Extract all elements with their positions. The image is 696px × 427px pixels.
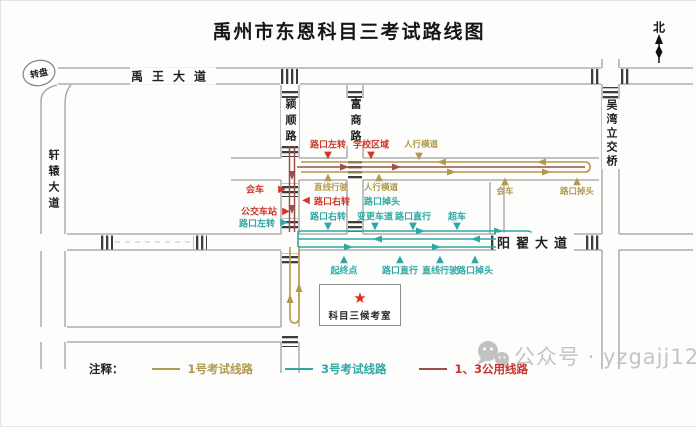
arrow-down-icon	[324, 222, 332, 232]
arrow-up-icon	[396, 255, 404, 265]
arrow-right-icon	[280, 218, 288, 228]
legend-line-shared	[419, 368, 447, 371]
red-label-turn-left: 路口左转	[310, 138, 346, 151]
north-label: 北	[653, 19, 665, 36]
legend-label-route3: 3号考试线路	[321, 361, 387, 377]
star-icon	[353, 288, 366, 307]
legend: 注释： 1号考试线路 3号考试线路 1、3公用线路	[89, 360, 560, 378]
arrow-up-icon	[471, 255, 479, 265]
exam-room-box: 科目三候考室	[319, 284, 401, 326]
legend-label-route1: 1号考试线路	[188, 361, 254, 377]
teal-label-start-end-point: 起终点	[330, 264, 357, 277]
arrow-down-icon	[453, 222, 461, 232]
arrow-up-icon	[436, 255, 444, 265]
route-map-canvas: 禹州市东恩科目三考试路线图 北 转盘 禹王大道 轩辕大道 颍顺路 富商路 阳翟大…	[0, 0, 696, 427]
olive-label-crosswalk-top: 人行横道	[404, 138, 438, 150]
arrow-up-icon	[340, 255, 348, 265]
arrow-down-icon	[371, 222, 379, 232]
road-label-yangzhai: 阳翟大道	[496, 233, 574, 252]
arrow-right-icon	[282, 207, 290, 217]
red-label-turn-right: 路口右转	[314, 195, 350, 208]
teal-label-turn-left: 路口左转	[239, 217, 275, 230]
legend-line-route3	[285, 368, 313, 371]
teal-label-go-straight-bottom: 路口直行	[382, 264, 418, 277]
road-label-yuwang: 禹王大道	[130, 68, 216, 85]
arrow-right-icon	[278, 185, 286, 195]
road-label-xuanyuan: 轩辕大道	[44, 149, 62, 213]
arrow-left-icon	[302, 196, 310, 206]
arrow-up-icon	[375, 173, 383, 183]
teal-label-straight-drive: 直线行驶	[422, 264, 458, 277]
teal-label-u-turn-bottom: 路口掉头	[457, 264, 493, 277]
page-title: 禹州市东恩科目三考试路线图	[1, 17, 696, 44]
road-label-yingshun: 颍顺路	[281, 98, 299, 146]
red-label-school-zone: 学校区域	[353, 138, 389, 151]
arrow-down-icon	[367, 151, 375, 161]
teal-label-u-turn-mid: 路口掉头	[364, 195, 400, 208]
arrow-down-icon	[415, 152, 423, 162]
arrow-up-icon	[324, 173, 332, 183]
legend-line-route1	[152, 368, 180, 371]
arrow-up-icon	[573, 177, 581, 187]
arrow-down-icon	[324, 151, 332, 161]
red-label-meet-vehicle: 会车	[246, 183, 264, 196]
arrow-up-icon	[501, 177, 509, 187]
arrow-down-icon	[409, 222, 417, 232]
exam-room-label: 科目三候考室	[328, 308, 391, 322]
watermark-text: 公众号 · yzgajj122	[514, 341, 696, 371]
legend-prefix: 注释：	[89, 361, 124, 377]
road-label-wuwan: 吴湾立交桥	[602, 99, 620, 169]
